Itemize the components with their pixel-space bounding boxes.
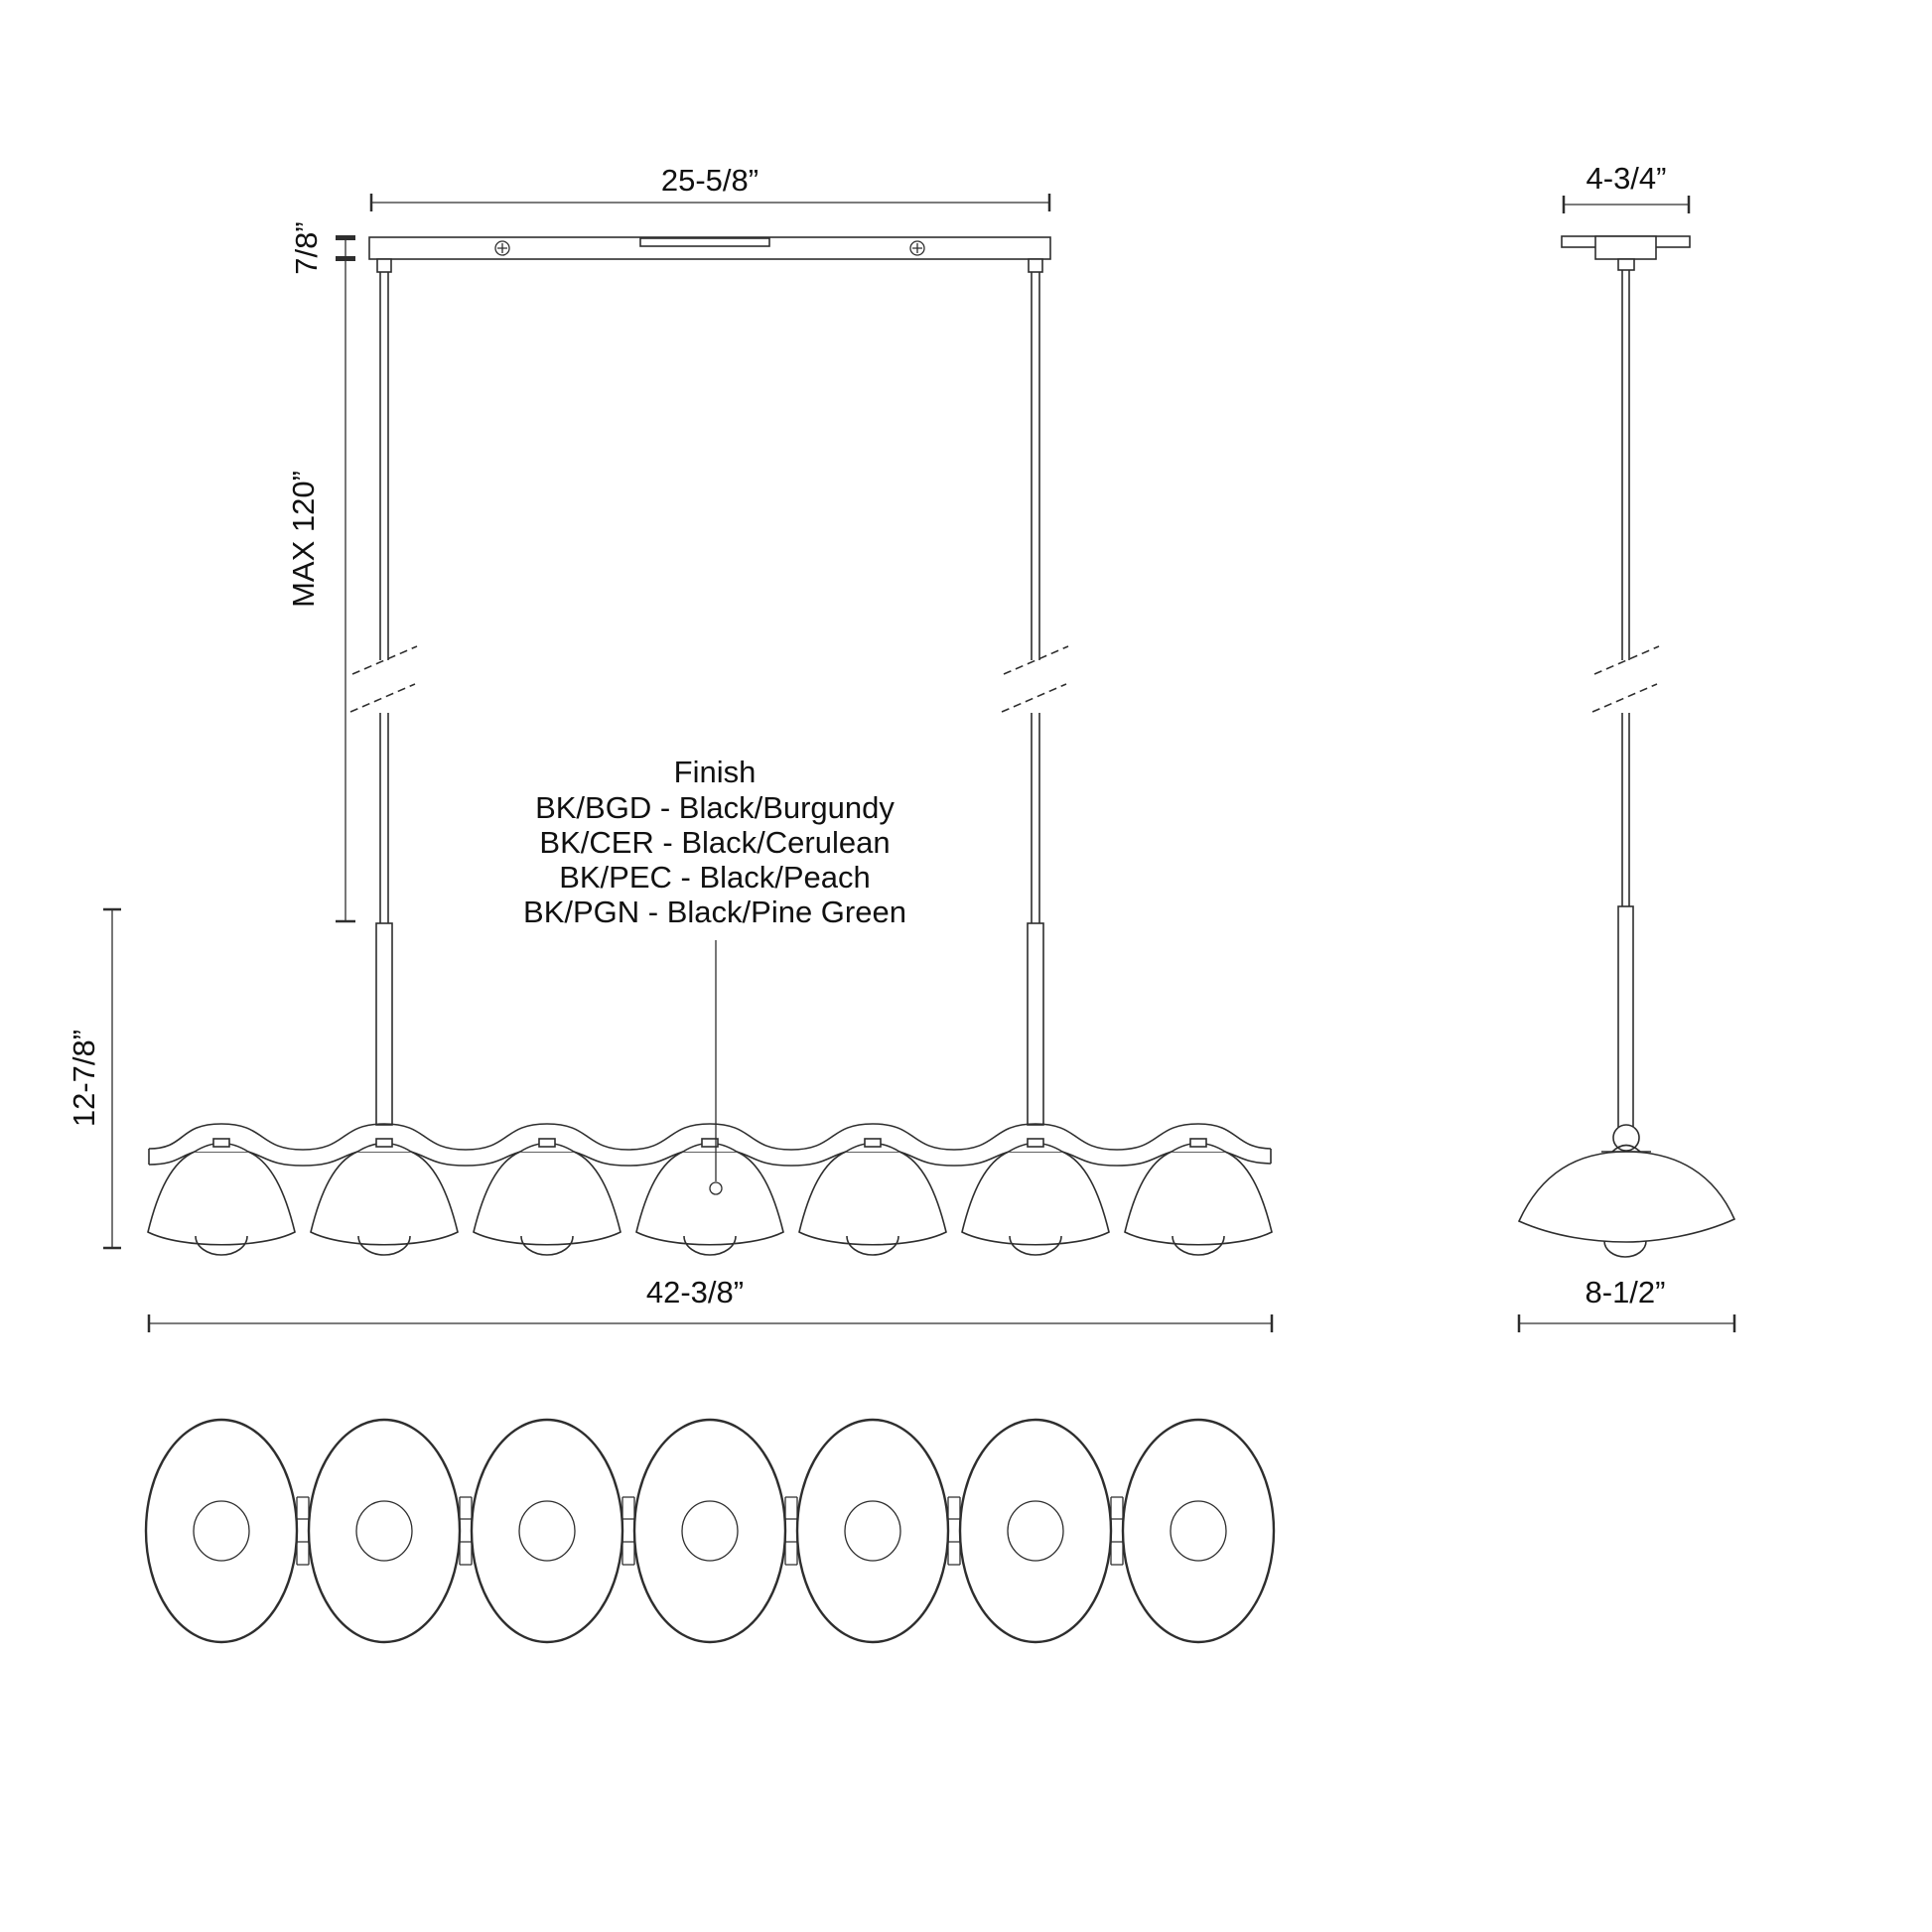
rod-break-icon <box>1002 646 1068 712</box>
ceiling-canopy <box>369 237 1050 259</box>
rod-break-icon <box>350 646 417 712</box>
side-view: 4-3/4” 8-1/2” <box>1519 161 1734 1332</box>
side-canopy <box>1562 236 1690 270</box>
disc-connector <box>622 1497 634 1565</box>
hang-rod-left <box>350 259 417 1125</box>
plan-view <box>146 1420 1274 1642</box>
shade-5 <box>799 1139 946 1255</box>
plan-disc-2 <box>309 1420 460 1642</box>
bulb-outline <box>1604 1241 1646 1257</box>
plan-disc-6 <box>960 1420 1111 1642</box>
front-view: 25-5/8” 7/8” <box>67 163 1272 1332</box>
canopy-center-plate <box>640 238 769 246</box>
hang-rod-right <box>1002 259 1068 1125</box>
fixture-height-label: 12-7/8” <box>67 1030 101 1127</box>
dimension-fixture-height: 12-7/8” <box>67 909 121 1248</box>
fixture-width-label: 42-3/8” <box>646 1275 744 1310</box>
shade-3 <box>474 1139 621 1255</box>
disc-connector <box>460 1497 472 1565</box>
side-hang-rod <box>1592 270 1659 1129</box>
shade-4 <box>636 1139 783 1255</box>
finish-option: BK/PGN - Black/Pine Green <box>523 895 906 929</box>
finish-legend: Finish BK/BGD - Black/Burgundy BK/CER - … <box>523 755 906 1194</box>
dimension-canopy-width: 25-5/8” <box>371 163 1049 211</box>
disc-connector <box>1111 1497 1123 1565</box>
stem-right <box>1028 923 1043 1125</box>
plan-disc-5 <box>797 1420 948 1642</box>
shade-6 <box>962 1139 1109 1255</box>
shade-row <box>148 1139 1272 1255</box>
max-suspension-label: MAX 120” <box>286 471 321 608</box>
side-shade <box>1519 1125 1734 1257</box>
rod-break-icon <box>1592 646 1659 712</box>
side-shade-width-label: 8-1/2” <box>1586 1275 1666 1310</box>
disc-connector <box>297 1497 309 1565</box>
swivel-ball <box>1613 1125 1639 1151</box>
screw-icon <box>495 241 509 255</box>
shade-7 <box>1125 1139 1272 1255</box>
screw-icon <box>910 241 924 255</box>
shade-1 <box>148 1139 295 1255</box>
finish-option: BK/CER - Black/Cerulean <box>539 825 890 860</box>
disc-connector <box>948 1497 960 1565</box>
finish-option: BK/BGD - Black/Burgundy <box>535 790 895 825</box>
shade-2 <box>311 1139 458 1255</box>
plan-disc-7 <box>1123 1420 1274 1642</box>
dimension-side-canopy-width: 4-3/4” <box>1564 161 1689 213</box>
finish-title: Finish <box>674 755 757 789</box>
side-stem <box>1618 906 1633 1129</box>
stem-left <box>376 923 392 1125</box>
canopy-width-label: 25-5/8” <box>661 163 759 198</box>
dimension-max-suspension: MAX 120” <box>286 261 355 921</box>
canopy-height-label: 7/8” <box>289 221 324 274</box>
dimension-fixture-width: 42-3/8” <box>149 1275 1272 1332</box>
spec-drawing: 25-5/8” 7/8” <box>0 0 1932 1932</box>
side-canopy-width-label: 4-3/4” <box>1587 161 1667 196</box>
finish-option: BK/PEC - Black/Peach <box>559 860 871 895</box>
disc-connector <box>785 1497 797 1565</box>
plan-disc-1 <box>146 1420 297 1642</box>
plan-disc-4 <box>634 1420 785 1642</box>
dimension-side-shade-width: 8-1/2” <box>1519 1275 1734 1332</box>
plan-disc-3 <box>472 1420 622 1642</box>
